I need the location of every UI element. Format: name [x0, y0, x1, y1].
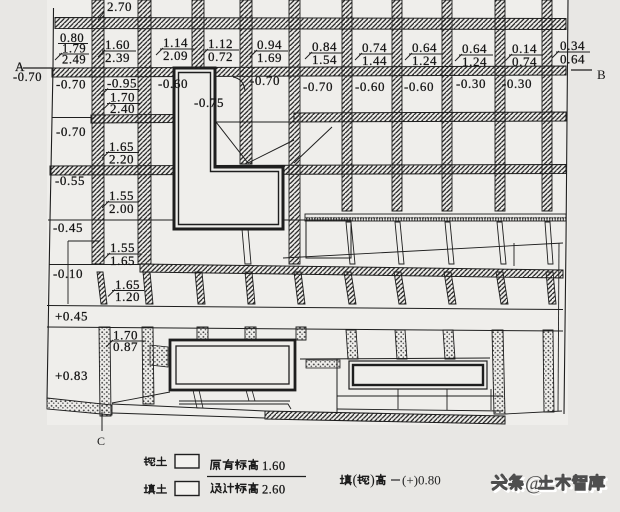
svg-text:0.74: 0.74 [512, 54, 537, 69]
svg-text:2.70: 2.70 [107, 0, 132, 14]
svg-text:0.72: 0.72 [208, 49, 233, 64]
svg-text:2.40: 2.40 [110, 101, 135, 116]
svg-text:C: C [97, 434, 105, 448]
svg-text:0.64: 0.64 [560, 52, 585, 67]
svg-text:-0.95: -0.95 [107, 76, 137, 91]
svg-text:-0.45: -0.45 [53, 220, 83, 235]
svg-text:2.39: 2.39 [105, 50, 130, 65]
svg-text:(: ( [353, 473, 358, 489]
svg-text:-0.70: -0.70 [13, 70, 42, 84]
svg-text:1.44: 1.44 [362, 53, 387, 68]
svg-text:+0.45: +0.45 [55, 309, 88, 324]
svg-text:-0.30: -0.30 [502, 76, 532, 91]
svg-text:-0.70: -0.70 [56, 77, 86, 92]
svg-text:-0.75: -0.75 [194, 95, 224, 110]
svg-text:-0.60: -0.60 [158, 76, 188, 91]
svg-text:-0.70: -0.70 [250, 73, 280, 88]
svg-text:2.49: 2.49 [62, 53, 86, 67]
svg-text:1.24: 1.24 [412, 53, 437, 68]
svg-text:-0.70: -0.70 [56, 124, 86, 139]
svg-text:@: @ [525, 472, 543, 494]
svg-text:B: B [597, 67, 606, 82]
svg-text:2.60: 2.60 [262, 483, 285, 497]
svg-text:(+)0.80: (+)0.80 [402, 473, 441, 488]
svg-text:1.69: 1.69 [257, 50, 282, 65]
svg-text:1.54: 1.54 [312, 52, 337, 67]
svg-text:-0.30: -0.30 [456, 76, 486, 91]
svg-text:1.20: 1.20 [115, 289, 140, 304]
svg-text:): ) [370, 473, 375, 489]
svg-text:2.09: 2.09 [163, 48, 188, 63]
svg-text:+0.83: +0.83 [55, 368, 88, 383]
svg-text:0.87: 0.87 [113, 339, 138, 354]
svg-text:1.60: 1.60 [262, 459, 285, 473]
svg-text:-0.55: -0.55 [55, 173, 85, 188]
svg-text:-0.60: -0.60 [404, 79, 434, 94]
svg-text:1.24: 1.24 [462, 54, 487, 69]
svg-text:1.65: 1.65 [110, 253, 135, 268]
svg-text:2.00: 2.00 [109, 201, 134, 216]
svg-text:-0.60: -0.60 [355, 79, 385, 94]
svg-text:-0.10: -0.10 [53, 266, 83, 281]
svg-text:-0.70: -0.70 [303, 79, 333, 94]
svg-text:2.20: 2.20 [109, 152, 134, 167]
